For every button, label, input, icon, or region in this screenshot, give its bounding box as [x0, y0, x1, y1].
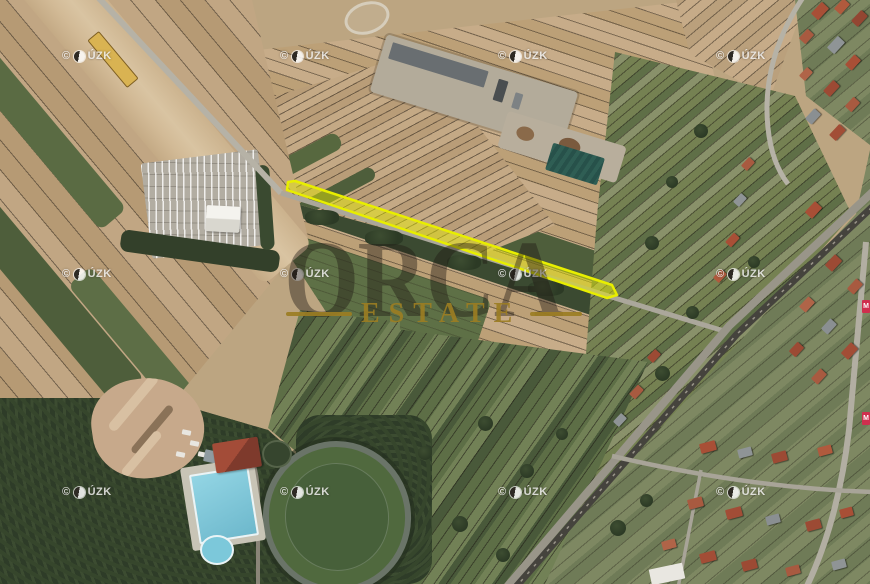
cuzk-org-label: ÚZK	[88, 268, 112, 280]
map-canvas[interactable]: ©ÚZK ©ÚZK ©ÚZK ©ÚZK ©ÚZK ©ÚZK ©ÚZK ©ÚZK …	[0, 0, 870, 584]
stadium-infield	[276, 455, 397, 579]
tree	[556, 428, 568, 440]
brand-subtitle: ESTATE	[361, 300, 521, 328]
cuzk-org-label: ÚZK	[524, 486, 548, 498]
cuzk-watermark: ©ÚZK	[498, 50, 548, 62]
tree	[496, 548, 510, 562]
copyright-symbol: ©	[498, 50, 507, 62]
copyright-symbol: ©	[280, 486, 289, 498]
cuzk-org-label: ÚZK	[524, 50, 548, 62]
tree	[645, 236, 659, 250]
tree	[418, 446, 432, 460]
copyright-symbol: ©	[62, 50, 71, 62]
cuzk-globe-icon	[510, 51, 521, 62]
brand-estate-row: ESTATE	[286, 300, 582, 328]
copyright-symbol: ©	[716, 50, 725, 62]
round-grove	[262, 440, 292, 468]
cuzk-globe-icon	[292, 487, 303, 498]
tree	[520, 464, 534, 478]
brand-dash-left	[286, 312, 352, 316]
cuzk-globe-icon	[74, 487, 85, 498]
cuzk-org-label: ÚZK	[742, 50, 766, 62]
cuzk-watermark: ©ÚZK	[62, 50, 112, 62]
copyright-symbol: ©	[62, 486, 71, 498]
cuzk-org-label: ÚZK	[88, 50, 112, 62]
truck	[511, 92, 523, 110]
tree	[655, 366, 670, 381]
cuzk-globe-icon	[292, 51, 303, 62]
cuzk-watermark: ©ÚZK	[716, 50, 766, 62]
copyright-symbol: ©	[716, 486, 725, 498]
kids-pool	[200, 535, 234, 565]
cuzk-globe-icon	[728, 269, 739, 280]
tree	[748, 256, 760, 268]
copyright-symbol: ©	[62, 268, 71, 280]
swimming-pool	[189, 466, 259, 545]
tree	[640, 494, 653, 507]
cuzk-org-label: ÚZK	[306, 486, 330, 498]
edge-label-upper: M	[862, 300, 870, 313]
cuzk-org-label: ÚZK	[306, 50, 330, 62]
cemetery-chapel	[205, 205, 240, 233]
tree	[610, 520, 626, 536]
green-strip	[0, 195, 144, 405]
edge-label-lower: M	[862, 412, 870, 425]
copyright-symbol: ©	[280, 50, 289, 62]
cuzk-watermark: ©ÚZK	[280, 50, 330, 62]
small-track-oval	[340, 0, 394, 40]
cuzk-watermark: ©ÚZK	[62, 268, 112, 280]
dirt-pile	[515, 124, 536, 143]
cuzk-org-label: ÚZK	[742, 268, 766, 280]
cuzk-watermark: ©ÚZK	[280, 486, 330, 498]
tree	[478, 416, 493, 431]
cuzk-globe-icon	[728, 487, 739, 498]
tree	[666, 176, 678, 188]
copyright-symbol: ©	[716, 268, 725, 280]
cuzk-org-label: ÚZK	[88, 486, 112, 498]
cuzk-globe-icon	[510, 487, 521, 498]
cuzk-globe-icon	[728, 51, 739, 62]
cuzk-watermark: ©ÚZK	[716, 268, 766, 280]
cuzk-org-label: ÚZK	[742, 486, 766, 498]
copyright-symbol: ©	[498, 486, 507, 498]
cuzk-globe-icon	[74, 51, 85, 62]
cuzk-watermark: ©ÚZK	[716, 486, 766, 498]
truck	[493, 79, 509, 103]
cuzk-watermark: ©ÚZK	[62, 486, 112, 498]
tree	[694, 124, 708, 138]
tree	[452, 516, 468, 532]
cuzk-watermark: ©ÚZK	[498, 486, 548, 498]
cuzk-globe-icon	[74, 269, 85, 280]
house	[829, 124, 846, 141]
tree	[686, 306, 699, 319]
brand-dash-right	[530, 312, 582, 316]
